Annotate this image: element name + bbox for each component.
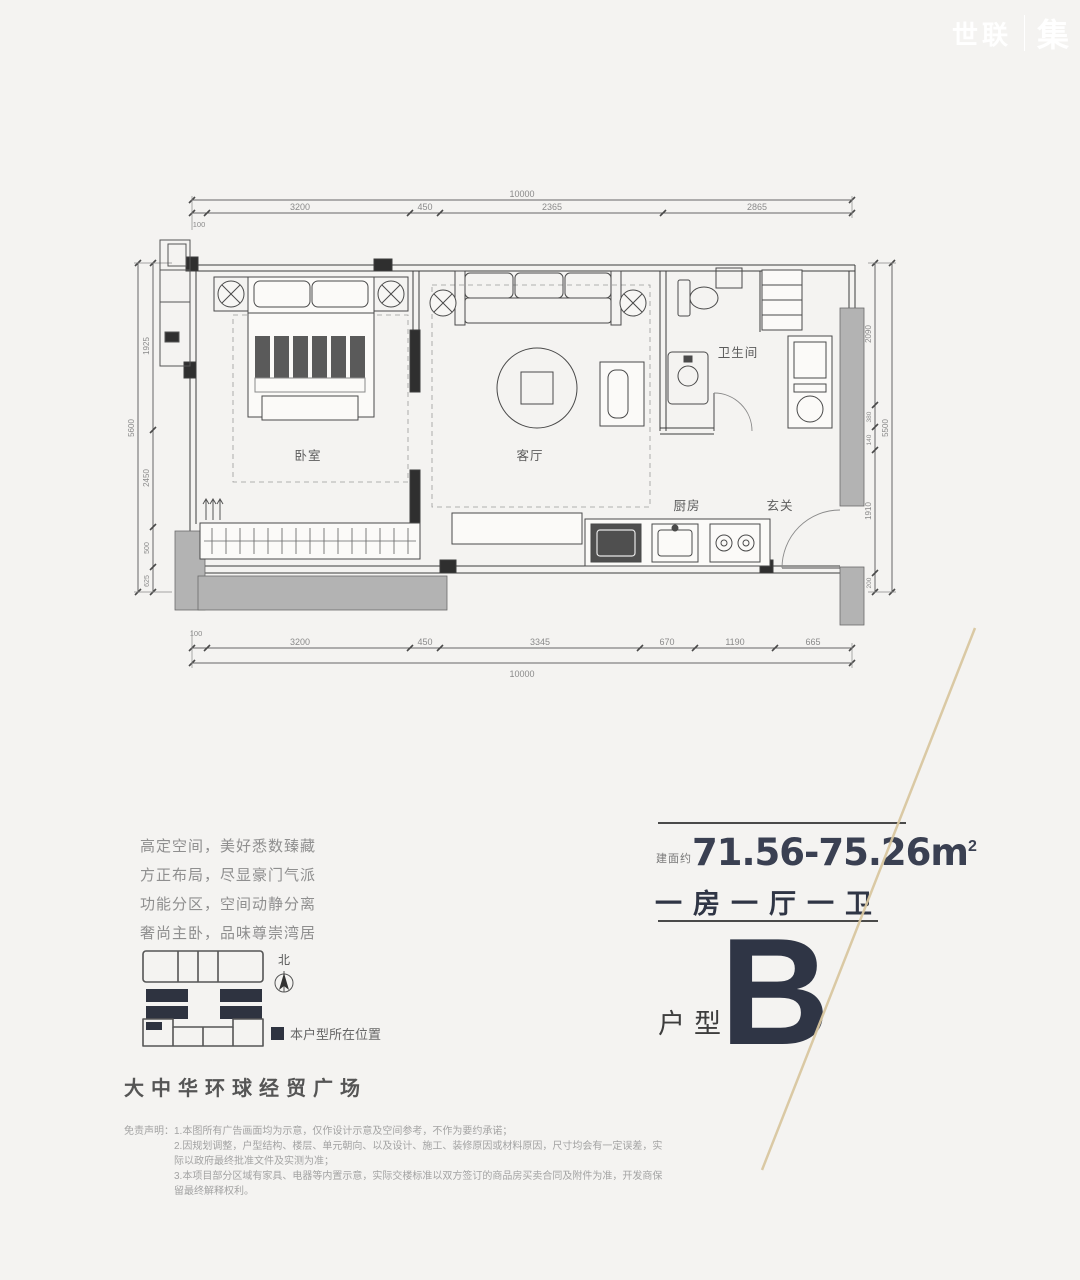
bath-sink (668, 352, 708, 404)
dim-label: 10000 (509, 669, 534, 679)
dim-label: 665 (805, 637, 820, 647)
dimension-left: 5600 1925 2450 500 625 (127, 260, 172, 595)
legend-swatch (271, 1027, 284, 1040)
disclaimer-line: 2.因规划调整，户型结构、楼层、单元朝向、以及设计、施工、装修原因或材料原因，尺… (174, 1139, 669, 1169)
washer-column (788, 336, 832, 428)
dim-label: 2450 (142, 469, 151, 487)
dim-label: 140 (866, 434, 873, 445)
dim-label: 1910 (864, 502, 873, 520)
key-plan-legend: 本户型所在位置 (271, 1024, 381, 1043)
dim-label: 5500 (881, 419, 890, 437)
dim-label: 1925 (142, 337, 151, 355)
lamp-left (430, 290, 456, 316)
sideboard (452, 513, 582, 544)
gray-wall-bottom (198, 576, 447, 610)
project-name: 大中华环球经贸广场 (124, 1072, 367, 1101)
area-prefix: 建面约 (656, 850, 692, 866)
room-label-kitchen: 厨房 (673, 498, 700, 513)
bedroom (200, 277, 420, 559)
dim-label: 2865 (747, 202, 767, 212)
area-value: 71.56-75.26m (692, 834, 968, 871)
lamp-right (620, 290, 646, 316)
dim-label: 500 (144, 542, 151, 554)
bed-bench (262, 396, 358, 420)
sofa (455, 271, 621, 325)
dimension-bottom: 100 3200 450 3345 670 1190 665 10000 (189, 629, 855, 679)
wardrobe (200, 523, 420, 559)
key-plan-top-row (143, 951, 263, 982)
room-label-living: 客厅 (516, 448, 543, 463)
dim-label: 450 (417, 202, 432, 212)
coffee-table (497, 348, 577, 428)
nightstand-left (214, 277, 248, 311)
watermark-brand: 世联 (952, 15, 1012, 52)
area-superscript: 2 (968, 839, 977, 855)
dim-label: 5600 (127, 419, 136, 437)
unit-area: 建面约 71.56-75.26m 2 (656, 834, 977, 871)
dim-label: 100 (190, 629, 203, 638)
dim-label: 3200 (290, 637, 310, 647)
microwave (591, 524, 641, 562)
dim-label: 670 (659, 637, 674, 647)
dim-label: 200 (866, 577, 873, 588)
disclaimer-line: 1.本图所有广告画面均为示意，仅作设计示意及空间参考，不作为要约承诺； (174, 1124, 669, 1139)
dim-label: 450 (417, 637, 432, 647)
dim-label: 100 (193, 220, 206, 229)
legend-label: 本户型所在位置 (290, 1024, 381, 1043)
dim-label: 3200 (290, 202, 310, 212)
gray-wall-right-lower (840, 567, 864, 625)
marketing-line: 高定空间，美好悉数臻藏 (140, 832, 316, 861)
dimension-right: 2090 380 140 1910 200 5500 (864, 260, 896, 595)
watermark: 世联 集 (952, 10, 1069, 56)
vent-arrows (203, 499, 223, 520)
tv-unit (600, 362, 644, 426)
marketing-line: 方正布局，尽显豪门气派 (140, 861, 316, 890)
key-plan-unit-highlight (146, 989, 262, 1030)
marketing-line: 奢尚主卧，品味尊崇湾居 (140, 919, 316, 948)
living-room (430, 271, 650, 544)
dim-label: 3345 (530, 637, 550, 647)
closet (762, 270, 802, 330)
dim-label: 1190 (725, 637, 744, 647)
exterior-ledge (160, 240, 190, 366)
marketing-line: 功能分区，空间动静分离 (140, 890, 316, 919)
watermark-mark: 集 (1037, 10, 1069, 56)
dim-label: 380 (866, 411, 873, 422)
disclaimer-line: 3.本项目部分区域有家具、电器等内置示意，实际交楼标准以双方签订的商品房买卖合同… (174, 1169, 669, 1199)
disclaimer: 免责声明： 1.本图所有广告画面均为示意，仅作设计示意及空间参考，不作为要约承诺… (124, 1124, 669, 1199)
dim-label: 10000 (509, 189, 534, 199)
room-label-foyer: 玄关 (766, 498, 793, 513)
bath-door-arc (714, 393, 752, 431)
kitchen (585, 519, 770, 566)
north-compass-icon (275, 971, 293, 992)
unit-type-letter: B (720, 916, 830, 1068)
room-label-bathroom: 卫生间 (718, 346, 759, 360)
gray-wall-right-upper (840, 308, 864, 506)
nightstand-right (374, 277, 408, 311)
dim-label: 2365 (542, 202, 562, 212)
toilet (678, 280, 718, 316)
dimension-top: 10000 3200 450 2365 2865 100 (189, 189, 855, 230)
north-label: 北 (278, 953, 290, 967)
key-plan (143, 951, 263, 1046)
room-label-bedroom: 卧室 (294, 448, 321, 463)
dim-label: 625 (144, 575, 151, 587)
disclaimer-label: 免责声明： (124, 1124, 174, 1199)
marketing-copy: 高定空间，美好悉数臻藏 方正布局，尽显豪门气派 功能分区，空间动静分离 奢尚主卧… (140, 832, 316, 948)
dim-label: 2090 (864, 325, 873, 343)
watermark-divider (1024, 15, 1025, 51)
entry-door-arc (782, 510, 840, 568)
unit-info-top-rule (658, 822, 906, 824)
foyer (762, 270, 840, 568)
